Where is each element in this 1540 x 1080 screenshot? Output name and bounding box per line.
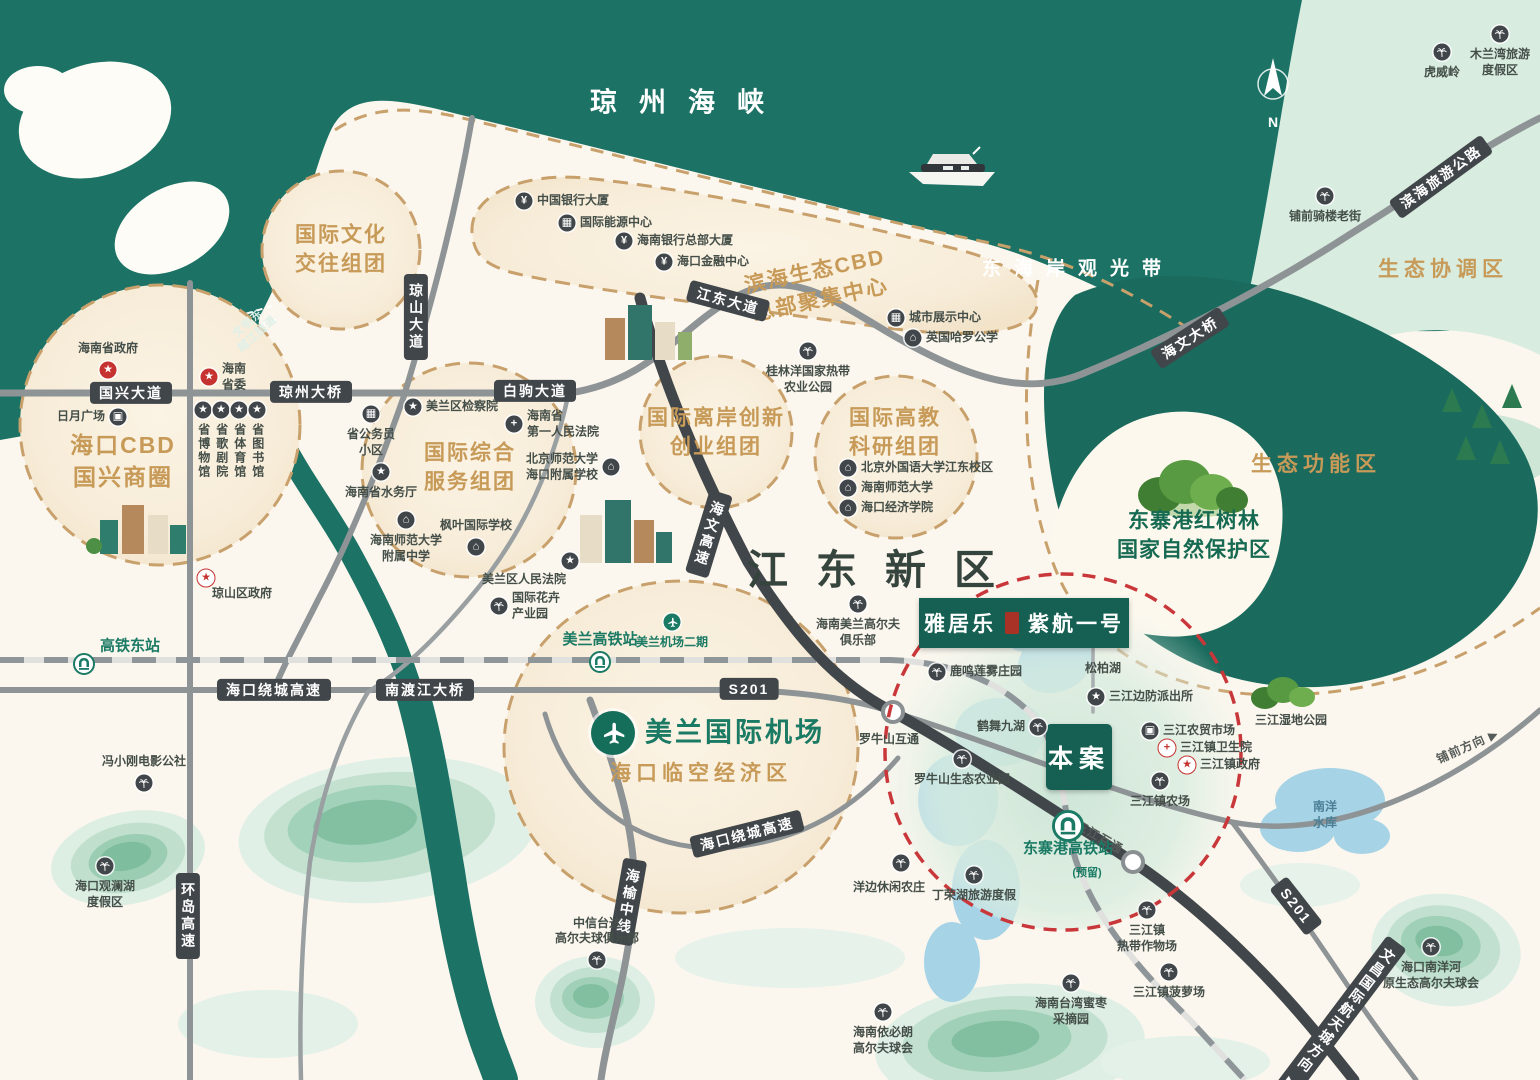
poi-label: 国际能源中心 (580, 215, 652, 231)
area-label: 江东新区 (747, 536, 1023, 596)
airplane-icon (664, 614, 681, 631)
poi-label: 鹤舞九湖 (977, 719, 1025, 735)
palm-icon (1152, 773, 1169, 790)
poi-label: 三江镇菠萝场 (1133, 985, 1205, 1001)
road-label: 琼州大桥 (270, 381, 352, 403)
rail-station-icon (589, 651, 611, 673)
area-label: 海口CBD国兴商圈 (70, 429, 176, 493)
compass-north-label: N (1268, 114, 1278, 130)
road-label: 琼山大道 (404, 274, 428, 360)
poi-label: 海南省水务厅 (345, 485, 417, 501)
poi-label: 北京外国语大学江东校区 (861, 460, 993, 476)
poi-label: 三江镇政府 (1200, 757, 1260, 773)
star-icon: ★ (373, 464, 390, 481)
area-label: 文明东越江隧道 (226, 302, 281, 355)
poi-label: 罗牛山互通 (859, 732, 919, 748)
palm-icon (136, 775, 153, 792)
palm-icon (97, 858, 114, 875)
school-icon: ⌂ (603, 459, 620, 476)
palm-icon (954, 751, 971, 768)
palm-icon (1063, 975, 1080, 992)
palm-icon (929, 664, 946, 681)
palm-icon (589, 952, 606, 969)
poi-label: 海口金融中心 (677, 254, 749, 270)
star-icon: ★ (405, 399, 422, 416)
poi-label: 海南银行总部大厦 (637, 233, 733, 249)
poi-label: 北京师范大学海口附属学校 (526, 451, 598, 482)
poi-label: 省公务员小区 (347, 427, 395, 458)
poi-label: 三江镇热带作物场 (1117, 923, 1177, 954)
palm-icon (491, 598, 508, 615)
rail-station-icon (73, 653, 95, 675)
palm-icon (875, 1004, 892, 1021)
palm-icon (1317, 188, 1334, 205)
palm-icon (893, 855, 910, 872)
road-label: S201 (1269, 876, 1323, 936)
area-label: 生态协调区 (1378, 253, 1508, 283)
poi-label: 英国哈罗公学 (926, 330, 998, 346)
poi-label: 海南依必朗高尔夫球会 (853, 1025, 913, 1056)
poi-label: 枫叶国际学校 (440, 518, 512, 534)
school-icon: ⌂ (468, 539, 485, 556)
poi-label: 省歌剧院 (213, 423, 229, 479)
poi-label: 三江边防派出所 (1109, 689, 1193, 705)
poi-label: 高铁东站 (100, 636, 160, 656)
palm-icon (1434, 44, 1451, 61)
school-icon: ⌂ (905, 330, 922, 347)
poi-label: 海南师范大学附属中学 (370, 533, 442, 564)
road-label: 白驹大道 (494, 380, 576, 402)
star-icon: ★ (562, 553, 579, 570)
poi-label: 海南省政府 (78, 341, 138, 357)
map-overlay: 雅居乐 紫航一号 本案 N 琼州海峡东海岸观光带江东新区滨海生态CBD总部聚集中… (0, 0, 1540, 1080)
area-label: 东海岸观光带 (982, 254, 1174, 281)
bank-icon: ¥ (656, 254, 673, 271)
star-icon: ★ (231, 402, 248, 419)
building-icon: ▦ (363, 406, 380, 423)
palm-icon (800, 343, 817, 360)
banner-project: 紫航一号 (1028, 608, 1124, 638)
brand-seal-icon (1005, 612, 1019, 634)
star-icon: ★ (1088, 689, 1105, 706)
road-label: 铺前方向 ▶ (1434, 726, 1501, 767)
hospital-cross-icon: + (1158, 739, 1177, 758)
poi-label: 美兰国际机场 (645, 715, 825, 750)
red-star-icon: ★ (197, 569, 216, 588)
poi-label: 洋边休闲农庄 (853, 880, 925, 896)
market-icon: ▣ (110, 409, 127, 426)
poi-label: 海南省委 (222, 361, 246, 392)
area-label: 国际文化交往组团 (295, 221, 387, 280)
road-label: 海文高速 (685, 489, 733, 578)
poi-label: 美兰区检察院 (426, 399, 498, 415)
gov-star-icon: ★ (100, 362, 117, 379)
area-label: 国际综合服务组团 (424, 439, 516, 498)
poi-label: 三江镇农场 (1130, 794, 1190, 810)
poi-label: 省博物馆 (195, 423, 211, 479)
palm-icon (1423, 939, 1440, 956)
gov-star-icon: ★ (201, 369, 218, 386)
poi-label: 美兰机场二期 (636, 635, 708, 651)
poi-label: 虎威岭 (1424, 65, 1460, 81)
area-label: 海口临空经济区 (610, 757, 792, 787)
poi-label: 铺前骑楼老街 (1289, 209, 1361, 225)
school-icon: ⌂ (840, 460, 857, 477)
poi-label: 海南美兰高尔夫俱乐部 (816, 617, 900, 648)
star-icon: ★ (195, 402, 212, 419)
poi-label: 三江湿地公园 (1255, 713, 1327, 729)
road-label: 南渡江大桥 (376, 679, 474, 701)
poi-label: 琼山区政府 (212, 586, 272, 602)
palm-icon (850, 596, 867, 613)
poi-label: 木兰湾旅游度假区 (1470, 47, 1530, 78)
building-icon: ▦ (559, 215, 576, 232)
site-marker: 本案 (1046, 724, 1112, 790)
poi-label: 省体育馆 (231, 423, 247, 479)
poi-label: 海南师范大学 (861, 480, 933, 496)
poi-label: 海口南洋河原生态高尔夫球会 (1383, 960, 1479, 991)
project-banner: 雅居乐 紫航一号 (919, 598, 1129, 648)
palm-icon (966, 867, 983, 884)
hospital-cross-icon: + (506, 416, 523, 433)
poi-label: 中信台达高尔夫球俱乐部 (555, 916, 639, 947)
poi-label: 东寨港高铁站 (1023, 839, 1113, 859)
palm-icon (1492, 26, 1509, 43)
poi-label: 海口观澜湖度假区 (75, 879, 135, 910)
area-label: 国际高教科研组团 (849, 404, 941, 463)
school-icon: ⌂ (840, 500, 857, 517)
poi-label: 海口经济学院 (861, 500, 933, 516)
road-label: 环岛高速 (176, 873, 200, 959)
area-label: (预留) (1072, 864, 1101, 880)
area-label: 国际离岸创新创业组团 (647, 404, 785, 463)
palm-icon (1030, 719, 1047, 736)
road-label: 海口绕城高速 (217, 679, 331, 701)
market-icon: ▣ (1142, 723, 1159, 740)
road-label: 海口绕城高速 (689, 809, 805, 858)
poi-label: 海南台湾蜜枣采摘园 (1035, 996, 1107, 1027)
poi-label: 省图书馆 (249, 423, 265, 479)
poi-label: 美兰区人民法院 (482, 572, 566, 588)
palm-icon (1161, 964, 1178, 981)
poi-label: 松柏湖 (1085, 661, 1121, 677)
area-label: 琼州海峡 (590, 81, 786, 120)
school-icon: ⌂ (840, 480, 857, 497)
road-label: 海文大桥 (1150, 306, 1231, 369)
star-icon: ★ (213, 402, 230, 419)
poi-label: 国际花卉产业园 (512, 590, 560, 621)
poi-label: 海南省第一人民法院 (527, 408, 599, 439)
poi-label: 城市展示中心 (909, 310, 981, 326)
poi-label: 中国银行大厦 (537, 193, 609, 209)
airplane-icon (591, 711, 635, 755)
area-label: 东寨港红树林国家自然保护区 (1117, 507, 1271, 566)
poi-label: 冯小刚电影公社 (102, 754, 186, 770)
area-label: 生态功能区 (1251, 448, 1381, 478)
poi-label: 鹿鸣莲雾庄园 (950, 664, 1022, 680)
poi-label: 罗牛山生态农业园 (914, 772, 1010, 788)
poi-label: 南洋水库 (1313, 799, 1337, 830)
poi-label: 桂林洋国家热带农业公园 (766, 364, 850, 395)
road-label: 滨海旅游公路 (1388, 135, 1493, 220)
road-label: S201 (720, 678, 779, 700)
star-icon: ★ (249, 402, 266, 419)
building-icon: ▦ (888, 310, 905, 327)
bank-icon: ¥ (616, 233, 633, 250)
poi-label: 丁荣湖旅游度假 (932, 888, 1016, 904)
road-label: 国兴大道 (90, 382, 172, 404)
palm-icon (1139, 902, 1156, 919)
district-map: 雅居乐 紫航一号 本案 N 琼州海峡东海岸观光带江东新区滨海生态CBD总部聚集中… (0, 0, 1540, 1080)
banner-brand: 雅居乐 (924, 608, 996, 638)
road-label: 文昌国际航天城方向 ▶ (1269, 935, 1407, 1080)
poi-label: 三江镇卫生院 (1180, 740, 1252, 756)
bank-icon: ¥ (516, 193, 533, 210)
red-star-icon: ★ (1178, 756, 1197, 775)
poi-label: 美兰高铁站 (562, 630, 637, 650)
poi-label: 日月广场 (57, 409, 105, 425)
school-icon: ⌂ (398, 512, 415, 529)
poi-label: 三江农贸市场 (1163, 723, 1235, 739)
rail-station-icon (1052, 810, 1084, 842)
